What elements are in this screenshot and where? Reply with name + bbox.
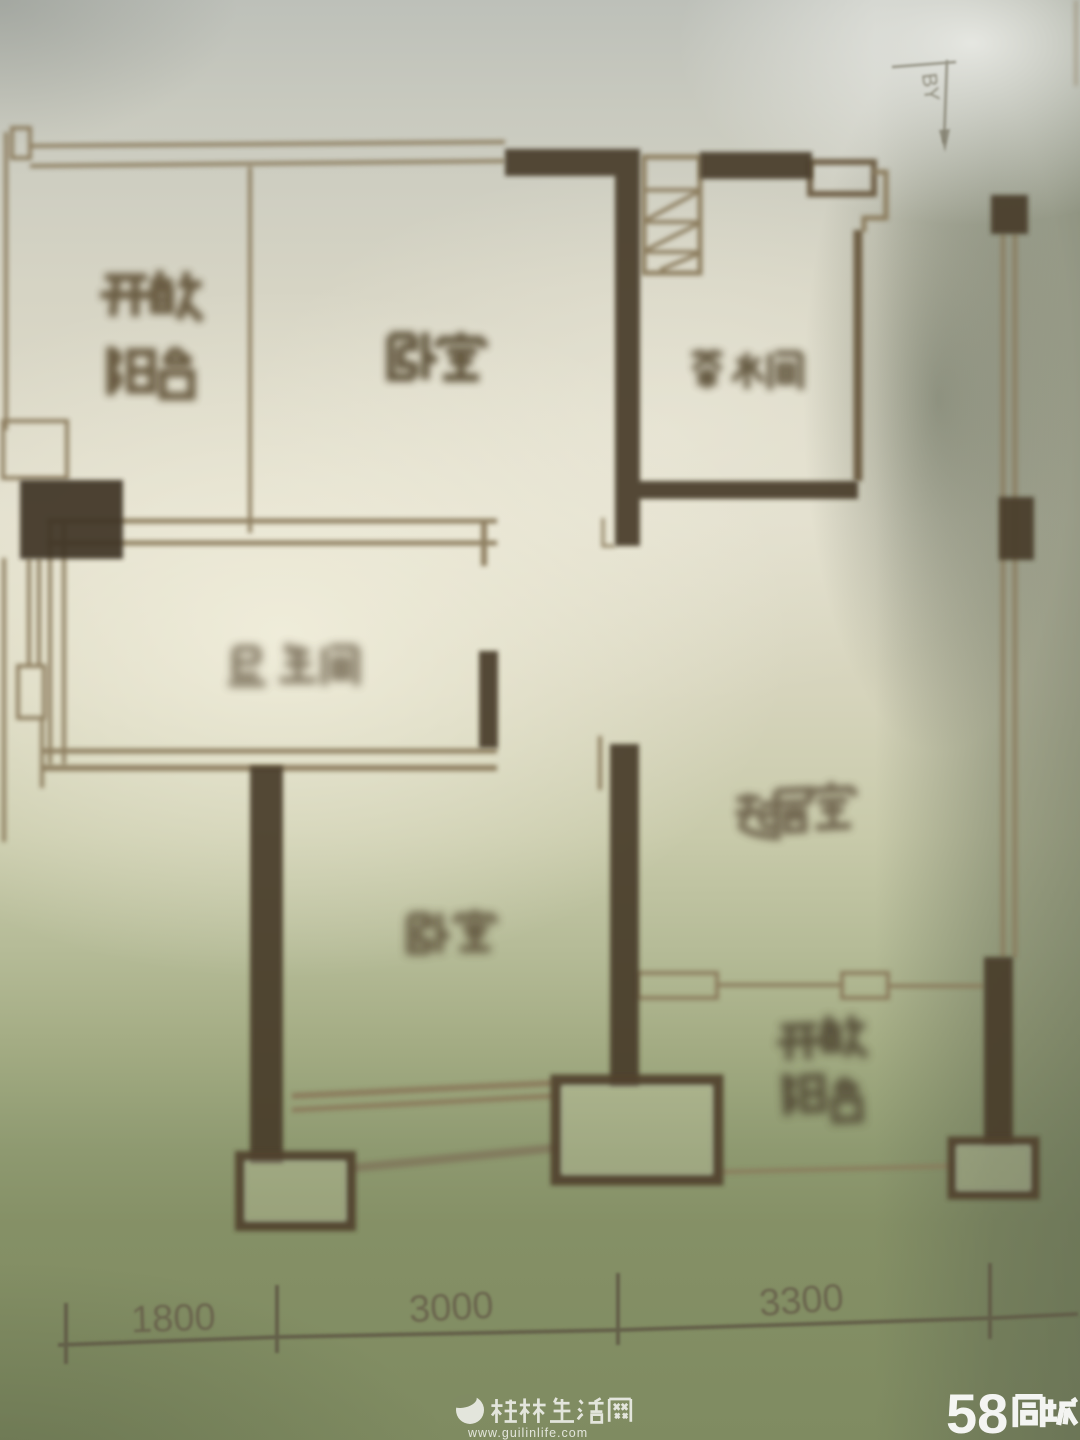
svg-text:1800: 1800 <box>130 1296 216 1341</box>
svg-text:3300: 3300 <box>758 1277 845 1325</box>
svg-text:BY: BY <box>917 72 943 103</box>
svg-text:58: 58 <box>946 1382 1008 1440</box>
svg-text:www.guilinlife.com: www.guilinlife.com <box>467 1426 588 1440</box>
svg-text:3000: 3000 <box>408 1285 495 1331</box>
